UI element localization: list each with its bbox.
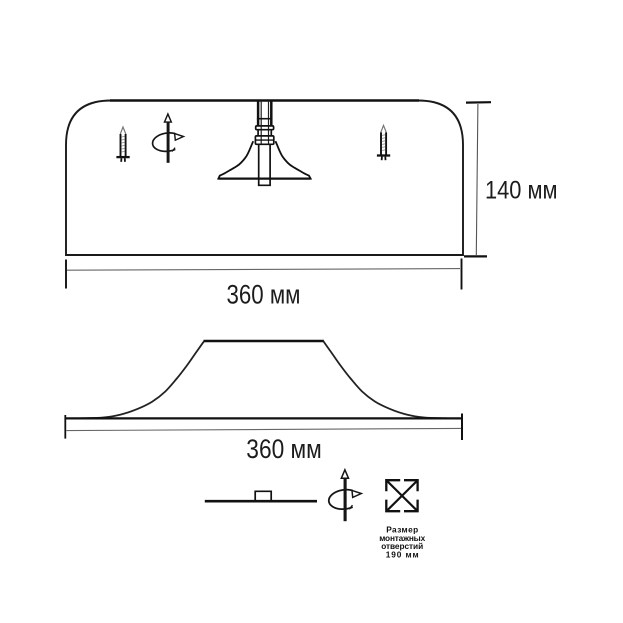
svg-text:360 мм: 360 мм — [246, 434, 321, 464]
svg-text:140 мм: 140 мм — [485, 176, 558, 204]
svg-text:360 мм: 360 мм — [227, 280, 301, 310]
